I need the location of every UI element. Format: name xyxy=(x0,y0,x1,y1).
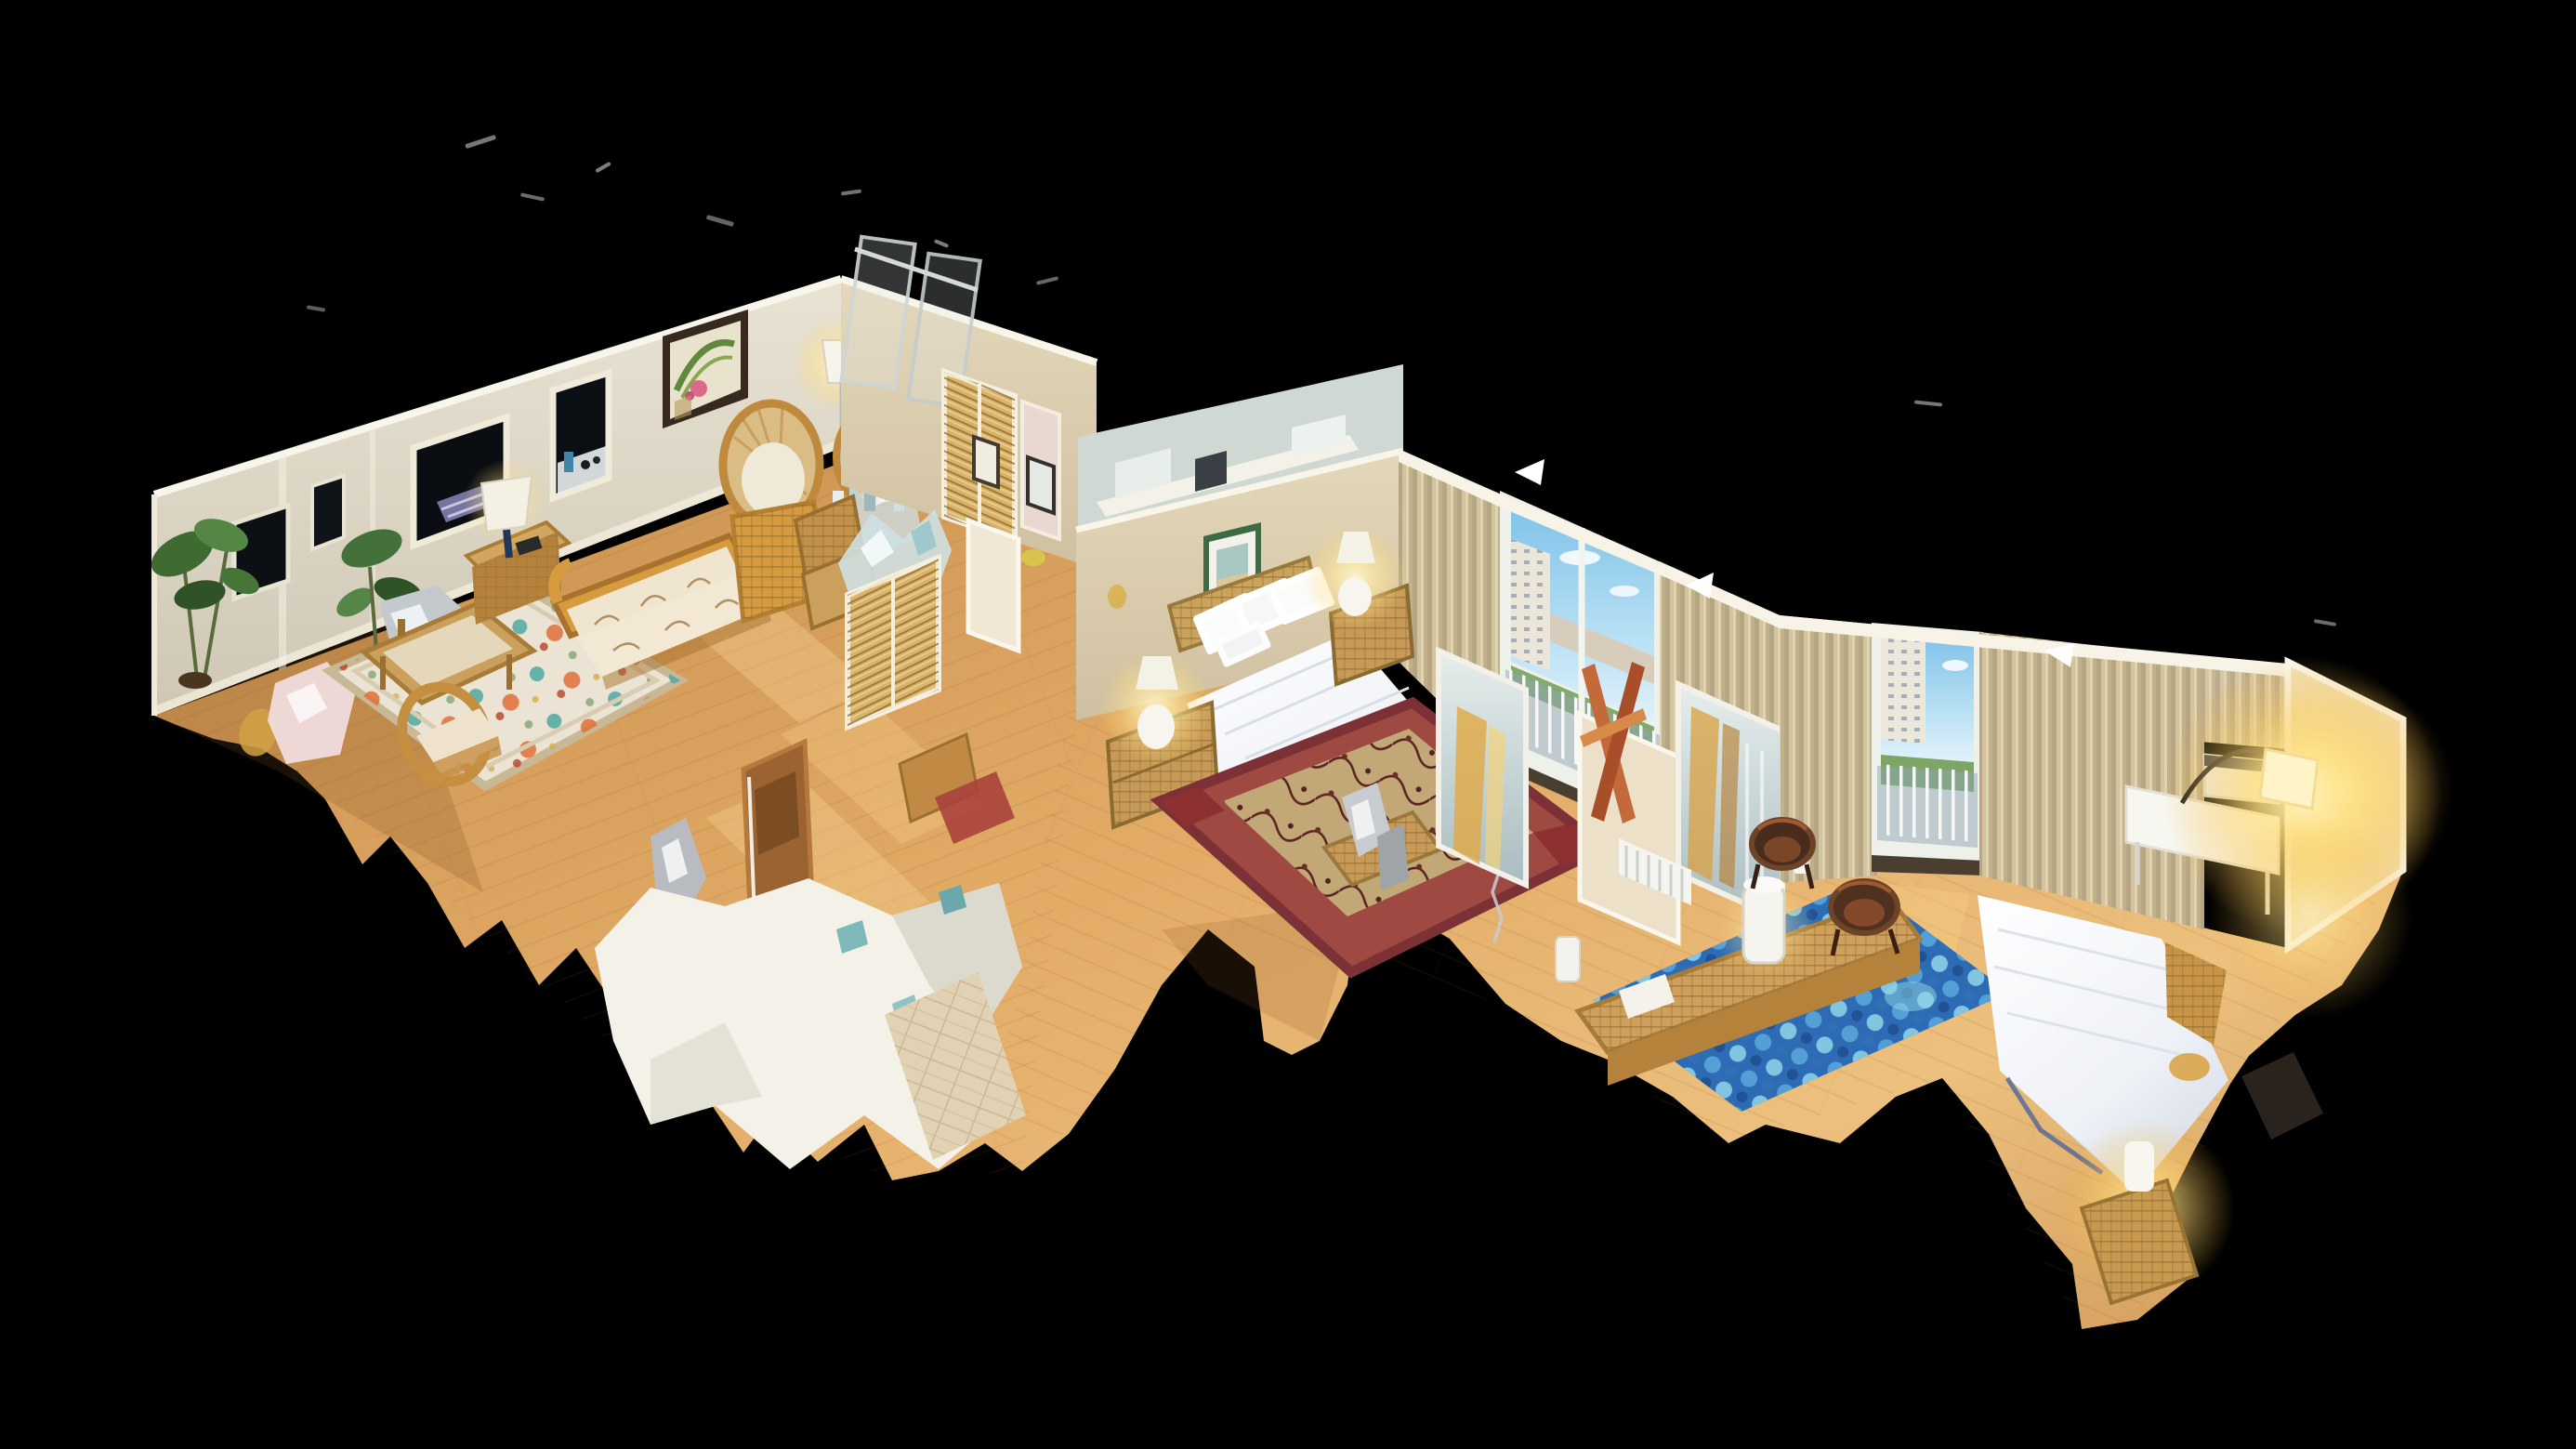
hall-frame-2 xyxy=(1028,457,1054,513)
gold-sconce xyxy=(1108,585,1126,609)
dollhouse-viewport[interactable] xyxy=(0,0,2576,1449)
rug-worn-patch xyxy=(1885,981,1937,1011)
floor-warm-glow xyxy=(2208,814,2412,1019)
trunk-lamp-shade xyxy=(2124,1141,2154,1192)
cloud xyxy=(1610,586,1639,597)
building-windows xyxy=(1511,539,1550,671)
lamp-stem xyxy=(506,530,509,558)
dollhouse-scene[interactable] xyxy=(0,0,2576,1449)
lamp-shade xyxy=(1136,656,1178,690)
pitcher-body xyxy=(1743,885,1784,963)
lamp-shade xyxy=(2260,749,2318,809)
blue-bottle xyxy=(564,452,573,472)
gold-fragment xyxy=(2169,1053,2210,1081)
wall-mirror-opening-small xyxy=(312,476,344,549)
balcony-railing xyxy=(1877,764,1978,842)
white-wastebasket xyxy=(1556,937,1580,981)
cloud xyxy=(1942,660,1968,671)
chair-seat xyxy=(1764,836,1801,863)
building-windows xyxy=(1881,636,1925,744)
half-wall xyxy=(968,520,1019,651)
hall-frame-1 xyxy=(974,437,998,487)
mirror-closet-left xyxy=(1439,651,1526,885)
dark-object xyxy=(593,456,600,464)
closet-pillar-wall xyxy=(1580,714,1678,942)
lamp-gourd-base xyxy=(1338,577,1372,616)
lamp-gourd-base xyxy=(1137,705,1175,749)
chair-seat xyxy=(1844,899,1885,927)
pitcher-top xyxy=(1743,876,1784,893)
yellow-plate-light xyxy=(1021,549,1045,566)
dark-object xyxy=(581,460,590,469)
plant-pot xyxy=(178,672,212,689)
window-opening-2 xyxy=(553,373,609,498)
balcony-door-2 xyxy=(1872,623,1983,876)
table-leg xyxy=(398,619,405,636)
faceted-lamp-shade xyxy=(481,476,532,532)
